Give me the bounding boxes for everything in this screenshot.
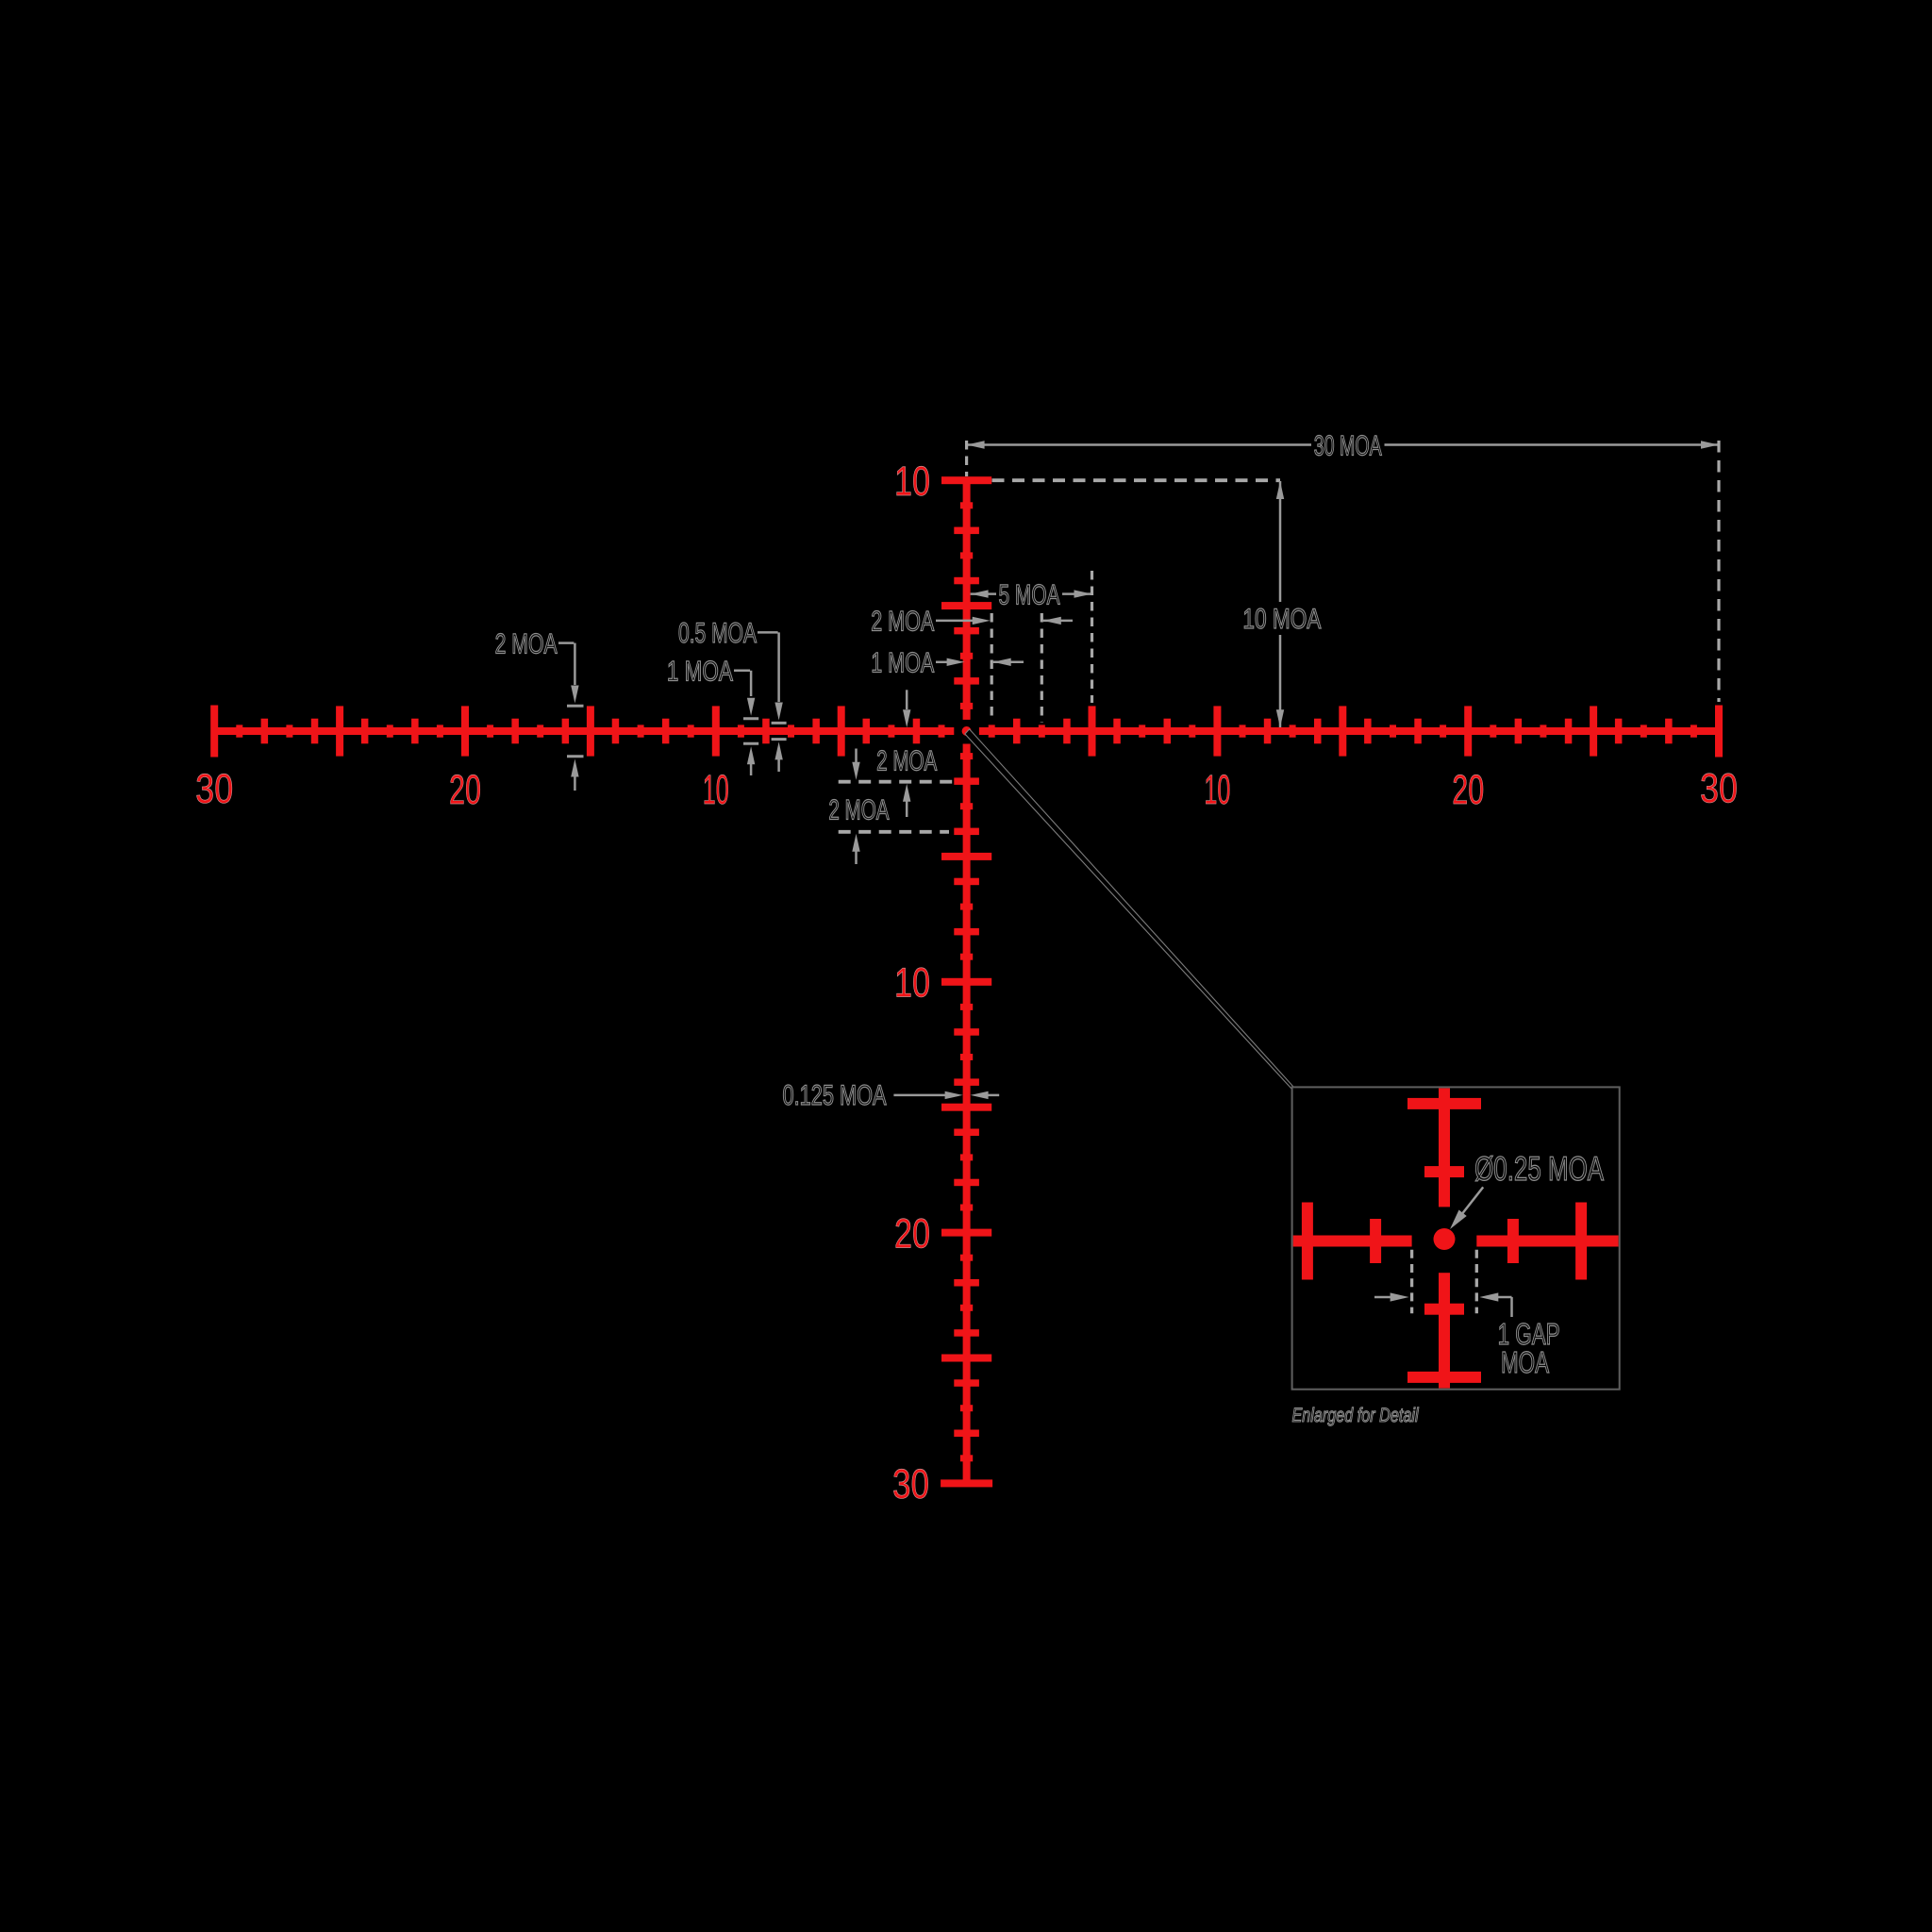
svg-text:30: 30 — [195, 766, 233, 812]
svg-text:2 MOA: 2 MOA — [871, 607, 934, 638]
svg-text:10 MOA: 10 MOA — [1242, 604, 1321, 635]
svg-text:10: 10 — [894, 960, 930, 1007]
svg-text:Ø0.25 MOA: Ø0.25 MOA — [1474, 1149, 1604, 1188]
svg-text:0.125 MOA: 0.125 MOA — [782, 1080, 886, 1111]
svg-text:1 MOA: 1 MOA — [871, 648, 934, 679]
svg-text:Enlarged for Detail: Enlarged for Detail — [1291, 1405, 1419, 1426]
svg-text:20: 20 — [1452, 767, 1484, 813]
svg-text:10: 10 — [703, 767, 729, 813]
svg-text:2 MOA: 2 MOA — [828, 795, 889, 826]
svg-text:5 MOA: 5 MOA — [999, 579, 1060, 610]
svg-text:30 MOA: 30 MOA — [1314, 431, 1382, 462]
svg-text:30: 30 — [1700, 765, 1738, 811]
svg-text:2 MOA: 2 MOA — [495, 629, 558, 660]
svg-text:20: 20 — [449, 767, 481, 813]
svg-text:MOA: MOA — [1501, 1345, 1549, 1379]
svg-text:30: 30 — [892, 1461, 929, 1507]
svg-text:10: 10 — [1204, 767, 1230, 813]
svg-text:10: 10 — [894, 458, 930, 505]
svg-text:20: 20 — [894, 1210, 930, 1257]
svg-text:1 MOA: 1 MOA — [667, 657, 733, 688]
svg-text:2 MOA: 2 MOA — [876, 745, 937, 776]
svg-text:0.5 MOA: 0.5 MOA — [678, 618, 757, 649]
